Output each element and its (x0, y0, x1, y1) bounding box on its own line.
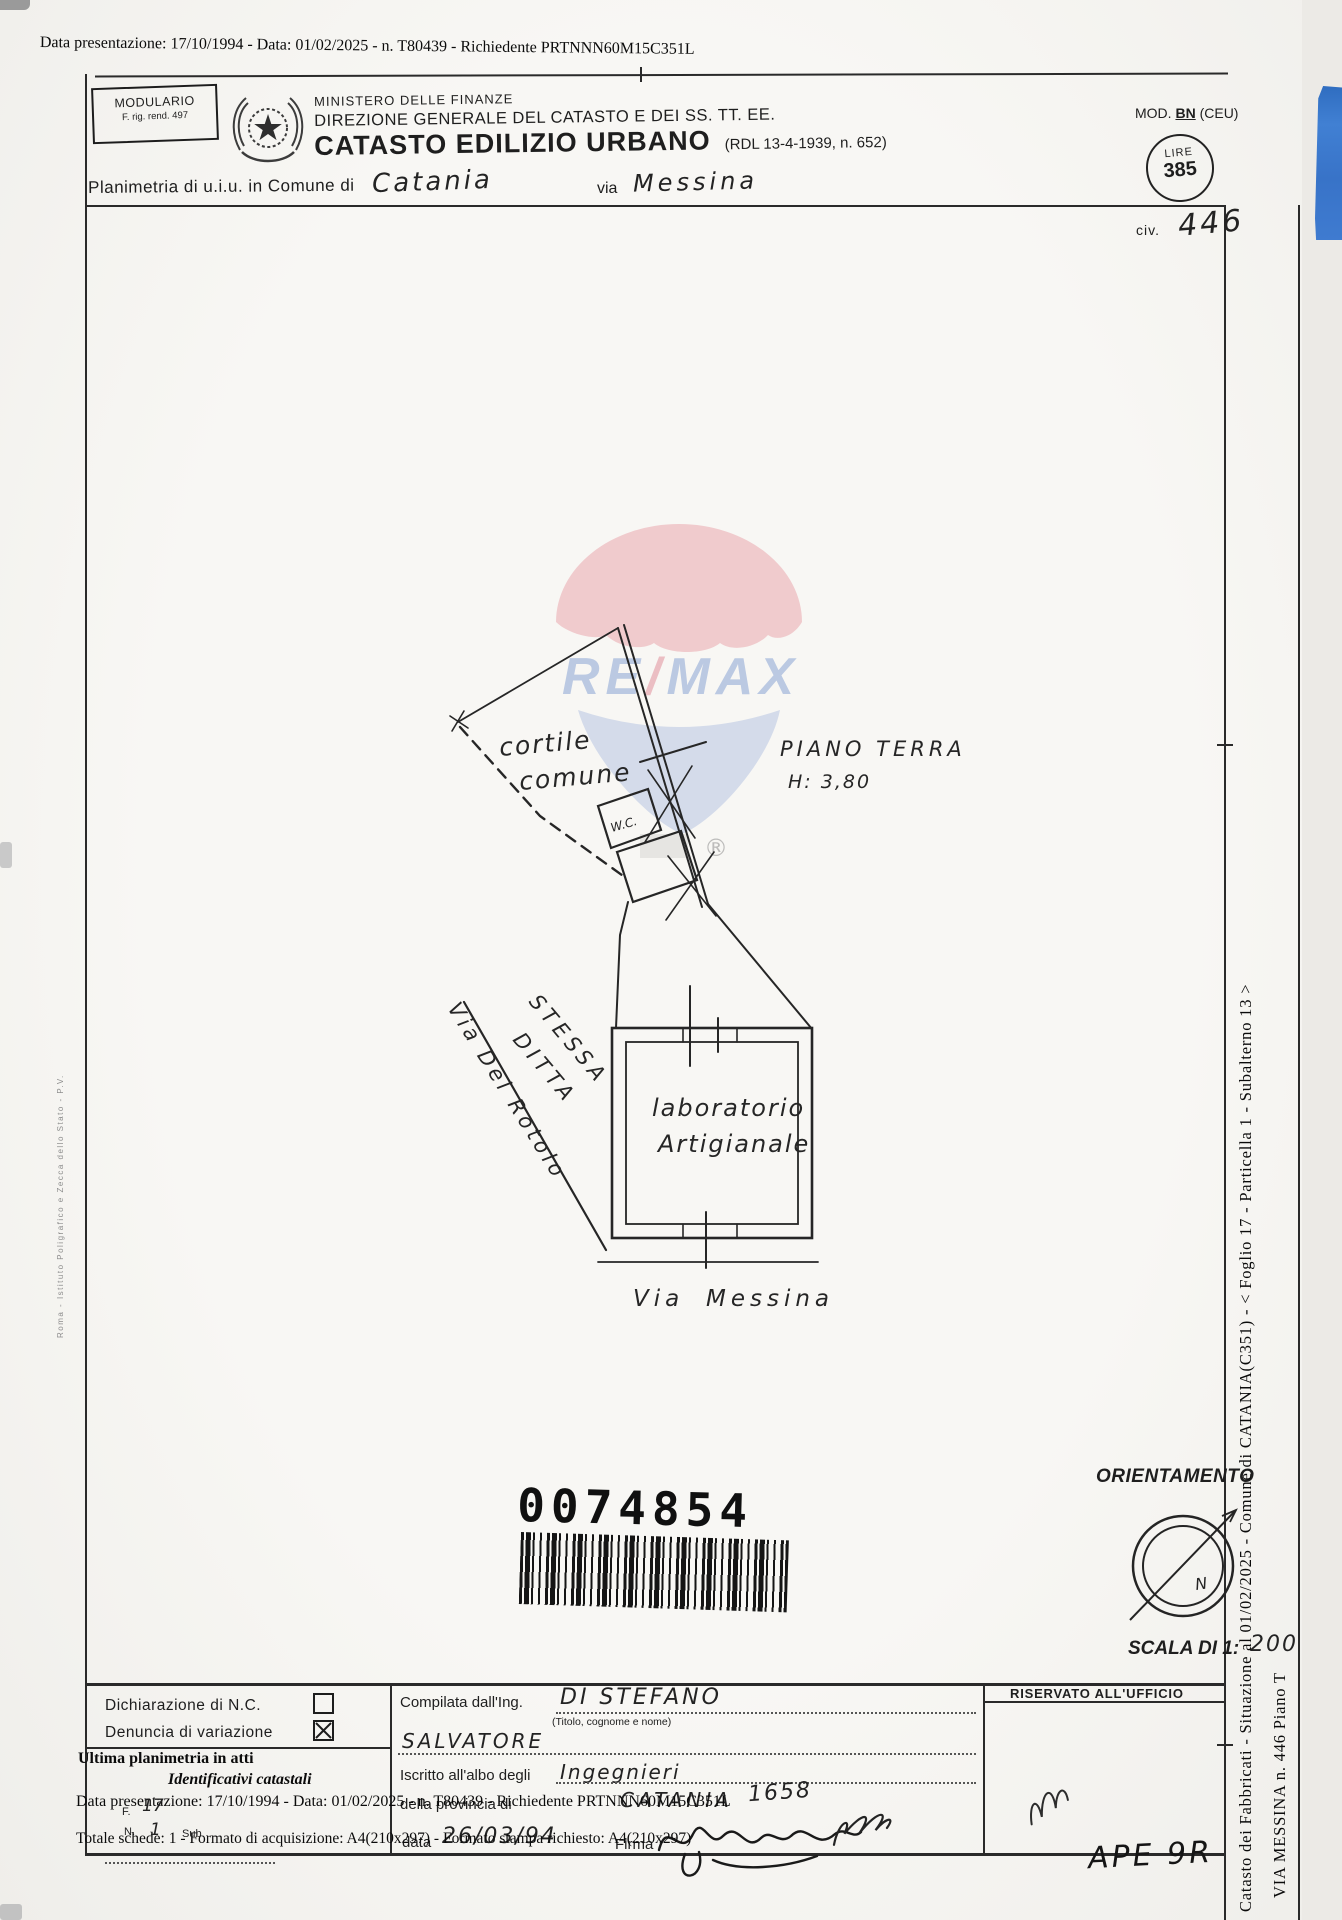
fill-line (398, 1753, 976, 1755)
plan-label-wc: W.C. (609, 814, 639, 835)
catasto-title: CATASTO EDILIZIO URBANO (314, 125, 711, 161)
overlay-totale-line: Totale schede: 1 - Formato di acquisizio… (76, 1830, 691, 1848)
paper-edge-shade (1302, 0, 1342, 1920)
compilata-value: DI STEFANO (560, 1685, 722, 1710)
scala-label: SCALA DI 1: (1128, 1638, 1239, 1660)
planimetria-label: Planimetria di u.i.u. in Comune di (88, 176, 355, 198)
overlay-identificativi: Identificativi catastali (168, 1771, 312, 1789)
iscritto-label: Iscritto all'albo degli (400, 1767, 530, 1784)
modulario-box: MODULARIO F. rig. rend. 497 (91, 84, 219, 144)
plan-label-piano-terra: PIANO TERRA (780, 737, 966, 761)
frame-right-border-inner (1224, 205, 1226, 1920)
lire-stamp: LIRE 385 (1143, 131, 1217, 205)
plan-label-via-messina-nome: Messina (706, 1286, 834, 1312)
titolo-note: (Titolo, cognome e nome) (552, 1716, 671, 1728)
frame-left-border (85, 74, 87, 1855)
mod-bn-label: MOD. BN (CEU) (1135, 105, 1238, 121)
svg-text:★: ★ (252, 108, 284, 149)
barcode-number: 0074854 (517, 1478, 754, 1538)
plan-label-artigianale: Artigianale (656, 1130, 810, 1158)
italy-emblem-icon: ★ (228, 88, 308, 182)
comune-value: Catania (372, 165, 494, 199)
frame-right-border-outer (1298, 205, 1300, 1920)
via-value: Messina (633, 166, 759, 197)
denuncia-checkbox-checked (313, 1720, 334, 1741)
denuncia-label: Denuncia di variazione (105, 1724, 273, 1742)
ministry-line: MINISTERO DELLE FINANZE (314, 91, 513, 109)
catasto-rdl: (RDL 13-4-1939, n. 652) (725, 134, 887, 153)
plan-label-via-messina-via: Via (633, 1286, 684, 1312)
modulario-title: MODULARIO (93, 93, 215, 111)
scala-value: 200 (1250, 1632, 1298, 1657)
catasto-title-row: CATASTO EDILIZIO URBANO (RDL 13-4-1939, … (314, 123, 887, 162)
floor-plan-sketch: cortile comune PIANO TERRA H: 3,80 W.C. … (350, 510, 1010, 1330)
riservato-underline (983, 1701, 1226, 1703)
sidebar-cadastral-line: Catasto dei Fabbricati - Situazione al 0… (1236, 984, 1256, 1912)
top-rule-tick (640, 67, 642, 82)
foglio-label: F. (122, 1806, 131, 1818)
below-form-dots (105, 1862, 275, 1864)
compass-north: N (1194, 1573, 1209, 1593)
left-cell-divider (85, 1747, 390, 1749)
form-divider-2 (983, 1683, 985, 1855)
scan-smudge (0, 842, 12, 868)
overlay-top-line: Data presentazione: 17/10/1994 - Data: 0… (40, 34, 695, 59)
compilata-label: Compilata dall'Ing. (400, 1694, 523, 1711)
blue-marker (1315, 86, 1342, 240)
overlay-data-line: Data presentazione: 17/10/1994 - Data: 0… (76, 1793, 731, 1811)
albo-numero-value: 1658 (747, 1778, 813, 1807)
scan-smudge (0, 0, 30, 10)
num-label: N. (124, 1826, 135, 1838)
albo-value: Ingegnieri (560, 1760, 681, 1784)
plan-label-comune: comune (518, 757, 633, 796)
civ-label: civ. (1136, 222, 1160, 238)
top-rule (95, 73, 1228, 78)
plan-label-cortile: cortile (498, 725, 593, 762)
dichiarazione-checkbox (313, 1693, 334, 1714)
foglio-value: 17 (142, 1796, 164, 1816)
sub-label: Sub. (182, 1828, 205, 1840)
dichiarazione-label: Dichiarazione di N.C. (105, 1697, 261, 1715)
plan-label-laboratorio: laboratorio (652, 1094, 805, 1122)
frame-top-border (85, 205, 1226, 207)
lire-value: 385 (1147, 156, 1213, 184)
scanned-document-page: Data presentazione: 17/10/1994 - Data: 0… (0, 0, 1342, 1920)
barcode-bars (519, 1532, 789, 1612)
via-label: via (597, 180, 617, 198)
fill-line (556, 1712, 976, 1714)
office-scribble (1018, 1762, 1078, 1832)
mod-pre: MOD. (1135, 105, 1172, 121)
frame-tick (1217, 744, 1233, 746)
scan-smudge (0, 1904, 22, 1920)
nome-value: SALVATORE (402, 1729, 544, 1753)
riservato-label: RISERVATO ALL'UFFICIO (1010, 1686, 1184, 1701)
ape-annotation: APE 9R (1087, 1835, 1214, 1876)
checkbox-x-icon (315, 1722, 332, 1739)
margin-print-text: Roma - Istituto Poligrafico e Zecca dell… (56, 1074, 65, 1338)
mod-post: (CEU) (1200, 105, 1239, 121)
overlay-ultima: Ultima planimetria in atti (78, 1750, 254, 1768)
sidebar-address-line: VIA MESSINA n. 446 Piano T (1270, 1672, 1290, 1898)
compass-icon: N (1118, 1498, 1248, 1630)
num-value: 1 (150, 1820, 161, 1840)
frame-tick (1217, 1744, 1233, 1746)
modulario-subtitle: F. rig. rend. 497 (94, 109, 216, 124)
civ-value: 446 (1177, 203, 1246, 244)
margin-scribble (830, 1776, 900, 1866)
plan-label-altezza: H: 3,80 (788, 771, 871, 793)
mod-bn: BN (1175, 105, 1195, 121)
orientamento-title: ORIENTAMENTO (1096, 1466, 1254, 1488)
